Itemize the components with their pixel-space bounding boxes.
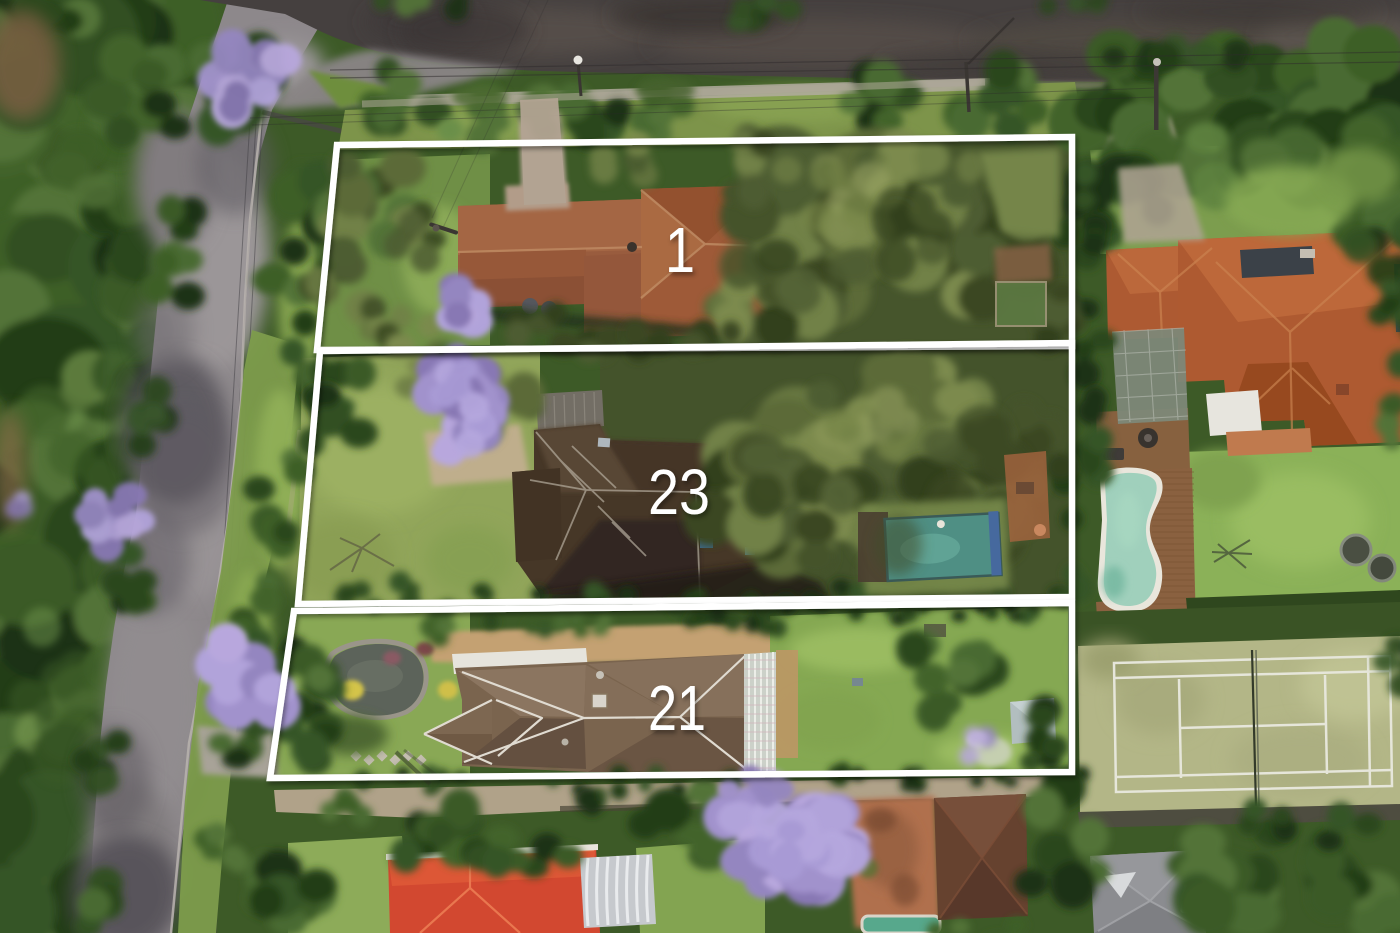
svg-text:1: 1 (665, 214, 695, 286)
svg-text:23: 23 (648, 456, 710, 528)
svg-text:21: 21 (648, 672, 706, 744)
